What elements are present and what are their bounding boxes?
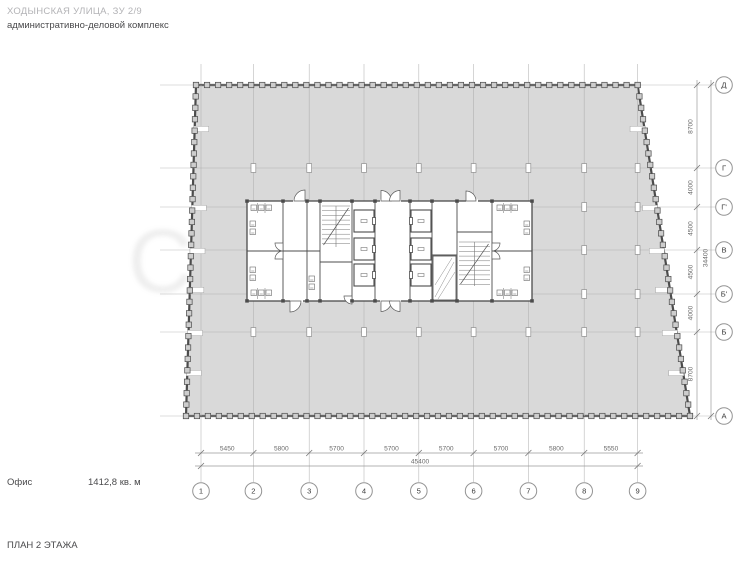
wall-nub bbox=[408, 199, 412, 202]
building-core bbox=[245, 190, 534, 312]
facade-tick bbox=[190, 208, 195, 213]
dimension-label: 5800 bbox=[274, 446, 289, 453]
facade-tick bbox=[458, 82, 463, 87]
wc-fixture bbox=[512, 205, 518, 211]
wc-fixture bbox=[250, 221, 256, 227]
dimension-label: 5700 bbox=[384, 446, 399, 453]
dimension-label: 5800 bbox=[549, 446, 564, 453]
facade-tick bbox=[658, 231, 663, 236]
facade-tick bbox=[651, 185, 656, 190]
elevator-door-mark bbox=[373, 272, 376, 279]
facade-tick bbox=[646, 151, 651, 156]
dimension-label: 4000 bbox=[688, 180, 695, 195]
wall-slot bbox=[190, 248, 205, 253]
wc-fixture bbox=[524, 267, 530, 273]
dimension-label: 4000 bbox=[688, 305, 695, 320]
space-type-label: Офис bbox=[7, 477, 32, 488]
facade-tick bbox=[188, 265, 193, 270]
facade-tick bbox=[194, 413, 199, 418]
column-marker bbox=[635, 246, 640, 255]
facade-tick bbox=[633, 413, 638, 418]
wc-fixture bbox=[505, 290, 511, 296]
elevator-shaft bbox=[411, 264, 431, 286]
wc-fixture bbox=[497, 205, 503, 211]
facade-tick bbox=[523, 413, 528, 418]
wall-nub bbox=[530, 299, 534, 302]
facade-tick bbox=[639, 105, 644, 110]
axis-bubble-label: Г bbox=[722, 164, 726, 173]
plan-title: ПЛАН 2 ЭТАЖА bbox=[7, 540, 78, 551]
wc-fixture bbox=[309, 276, 315, 282]
wc-fixture bbox=[251, 290, 257, 296]
facade-tick bbox=[673, 322, 678, 327]
facade-tick bbox=[613, 82, 618, 87]
facade-tick bbox=[186, 311, 191, 316]
facade-tick bbox=[640, 117, 645, 122]
column-marker bbox=[471, 164, 476, 173]
facade-tick bbox=[501, 413, 506, 418]
facade-tick bbox=[622, 413, 627, 418]
axis-bubble-label: 3 bbox=[307, 487, 311, 496]
facade-tick bbox=[186, 322, 191, 327]
dimension-label: 34400 bbox=[703, 249, 710, 268]
dimension-label: 5450 bbox=[220, 446, 235, 453]
elevator-shaft bbox=[411, 238, 431, 260]
facade-tick bbox=[260, 82, 265, 87]
wall-nub bbox=[455, 199, 459, 202]
facade-tick bbox=[644, 139, 649, 144]
wall-nub bbox=[281, 299, 285, 302]
wc-fixture bbox=[497, 290, 503, 296]
facade-tick bbox=[249, 413, 254, 418]
facade-tick bbox=[578, 413, 583, 418]
facade-tick bbox=[479, 413, 484, 418]
facade-tick bbox=[315, 82, 320, 87]
wc-fixture bbox=[250, 229, 256, 235]
axis-bubble-label: 4 bbox=[362, 487, 366, 496]
facade-tick bbox=[192, 139, 197, 144]
facade-tick bbox=[337, 413, 342, 418]
wc-fixture bbox=[524, 221, 530, 227]
facade-tick bbox=[187, 299, 192, 304]
wall-nub bbox=[350, 199, 354, 202]
facade-tick bbox=[184, 390, 189, 395]
elevator-door-mark bbox=[373, 218, 376, 225]
facade-tick bbox=[491, 82, 496, 87]
facade-tick bbox=[490, 413, 495, 418]
wc-fixture bbox=[524, 229, 530, 235]
column-marker bbox=[251, 164, 256, 173]
facade-tick bbox=[642, 128, 647, 133]
facade-tick bbox=[655, 208, 660, 213]
facade-tick bbox=[337, 82, 342, 87]
axis-bubble-label: Д bbox=[721, 81, 726, 90]
axis-bubble-label: 6 bbox=[471, 487, 475, 496]
column-marker bbox=[582, 290, 587, 299]
column-marker bbox=[635, 328, 640, 337]
wc-fixture bbox=[266, 205, 272, 211]
elevator-door-mark bbox=[410, 246, 413, 253]
facade-tick bbox=[190, 185, 195, 190]
dimension-label: 5700 bbox=[329, 446, 344, 453]
dimension-label: 4500 bbox=[688, 264, 695, 279]
facade-tick bbox=[525, 82, 530, 87]
wc-fixture bbox=[524, 275, 530, 281]
column-marker bbox=[416, 328, 421, 337]
facade-tick bbox=[193, 105, 198, 110]
column-marker bbox=[307, 164, 312, 173]
facade-tick bbox=[189, 219, 194, 224]
facade-tick bbox=[187, 288, 192, 293]
wall-nub bbox=[408, 299, 412, 302]
facade-tick bbox=[304, 413, 309, 418]
wall-nub bbox=[305, 199, 309, 202]
wall-nub bbox=[350, 299, 354, 302]
dimension-label: 5700 bbox=[439, 446, 454, 453]
facade-tick bbox=[185, 345, 190, 350]
facade-tick bbox=[662, 254, 667, 259]
facade-tick bbox=[237, 82, 242, 87]
facade-tick bbox=[687, 413, 692, 418]
column-marker bbox=[635, 290, 640, 299]
facade-tick bbox=[547, 82, 552, 87]
axis-bubble-label: Г' bbox=[721, 203, 727, 212]
axis-bubble-label: 5 bbox=[417, 487, 421, 496]
facade-tick bbox=[370, 413, 375, 418]
facade-tick bbox=[684, 390, 689, 395]
wall-slot bbox=[649, 248, 664, 253]
facade-tick bbox=[657, 219, 662, 224]
facade-tick bbox=[348, 82, 353, 87]
facade-tick bbox=[660, 242, 665, 247]
wc-fixture bbox=[250, 267, 256, 273]
dimension-label: 8700 bbox=[688, 366, 695, 381]
facade-tick bbox=[468, 413, 473, 418]
facade-tick bbox=[204, 82, 209, 87]
facade-tick bbox=[648, 162, 653, 167]
facade-tick bbox=[567, 413, 572, 418]
dimension-label: 45400 bbox=[411, 459, 430, 466]
facade-tick bbox=[293, 82, 298, 87]
facade-tick bbox=[653, 196, 658, 201]
wall-nub bbox=[245, 299, 249, 302]
facade-tick bbox=[435, 413, 440, 418]
facade-tick bbox=[665, 413, 670, 418]
facade-tick bbox=[685, 402, 690, 407]
facade-tick bbox=[282, 82, 287, 87]
facade-tick bbox=[675, 333, 680, 338]
facade-tick bbox=[392, 82, 397, 87]
axis-bubble-label: Б bbox=[722, 328, 727, 337]
elevator-door-mark bbox=[410, 272, 413, 279]
elevator-shaft bbox=[354, 264, 374, 286]
wall-nub bbox=[281, 199, 285, 202]
facade-tick bbox=[192, 128, 197, 133]
facade-tick bbox=[414, 82, 419, 87]
facade-tick bbox=[666, 276, 671, 281]
facade-tick bbox=[676, 413, 681, 418]
facade-tick bbox=[348, 413, 353, 418]
facade-tick bbox=[192, 117, 197, 122]
facade-tick bbox=[480, 82, 485, 87]
space-area-value: 1412,8 кв. м bbox=[88, 477, 141, 488]
column-marker bbox=[582, 164, 587, 173]
elevator-shaft bbox=[354, 238, 374, 260]
facade-tick bbox=[193, 94, 198, 99]
elevator-shaft bbox=[354, 210, 374, 232]
dimension-label: 5700 bbox=[494, 446, 509, 453]
axis-bubble-label: 2 bbox=[251, 487, 255, 496]
column-marker bbox=[471, 328, 476, 337]
facade-tick bbox=[359, 82, 364, 87]
axis-bubble-label: Б' bbox=[721, 290, 728, 299]
facade-tick bbox=[611, 413, 616, 418]
wall-nub bbox=[490, 199, 494, 202]
facade-tick bbox=[189, 231, 194, 236]
axis-bubble-label: 9 bbox=[635, 487, 639, 496]
facade-tick bbox=[680, 368, 685, 373]
facade-tick bbox=[185, 368, 190, 373]
wall-nub bbox=[245, 199, 249, 202]
wall-nub bbox=[430, 299, 434, 302]
dimension-label: 5550 bbox=[604, 446, 619, 453]
facade-tick bbox=[635, 82, 640, 87]
facade-tick bbox=[513, 82, 518, 87]
axis-bubble-label: 8 bbox=[582, 487, 586, 496]
facade-tick bbox=[191, 151, 196, 156]
facade-tick bbox=[271, 413, 276, 418]
facade-tick bbox=[413, 413, 418, 418]
facade-tick bbox=[534, 413, 539, 418]
facade-tick bbox=[190, 196, 195, 201]
facade-tick bbox=[326, 413, 331, 418]
facade-tick bbox=[502, 82, 507, 87]
facade-tick bbox=[637, 94, 642, 99]
wall-nub bbox=[373, 299, 377, 302]
floor-plan-page: ХОДЫНСКАЯ УЛИЦА, ЗУ 2/9 административно-… bbox=[0, 0, 756, 570]
column-marker bbox=[526, 164, 531, 173]
wc-fixture bbox=[259, 290, 265, 296]
facade-tick bbox=[184, 379, 189, 384]
column-marker bbox=[635, 203, 640, 212]
facade-tick bbox=[671, 311, 676, 316]
facade-tick bbox=[589, 413, 594, 418]
facade-tick bbox=[249, 82, 254, 87]
facade-tick bbox=[403, 82, 408, 87]
column-marker bbox=[416, 164, 421, 173]
facade-tick bbox=[436, 82, 441, 87]
facade-tick bbox=[215, 82, 220, 87]
facade-tick bbox=[227, 413, 232, 418]
facade-tick bbox=[556, 413, 561, 418]
facade-tick bbox=[602, 82, 607, 87]
facade-tick bbox=[624, 82, 629, 87]
facade-tick bbox=[424, 413, 429, 418]
facade-tick bbox=[664, 265, 669, 270]
facade-tick bbox=[271, 82, 276, 87]
column-marker bbox=[307, 328, 312, 337]
facade-tick bbox=[425, 82, 430, 87]
dimension-label: 4500 bbox=[688, 221, 695, 236]
facade-tick bbox=[188, 254, 193, 259]
column-marker bbox=[362, 164, 367, 173]
facade-tick bbox=[238, 413, 243, 418]
facade-tick bbox=[205, 413, 210, 418]
facade-tick bbox=[643, 413, 648, 418]
facade-tick bbox=[216, 413, 221, 418]
facade-tick bbox=[447, 82, 452, 87]
facade-tick bbox=[600, 413, 605, 418]
facade-tick bbox=[370, 82, 375, 87]
facade-tick bbox=[678, 356, 683, 361]
facade-tick bbox=[591, 82, 596, 87]
wall-nub bbox=[318, 299, 322, 302]
wall-nub bbox=[318, 199, 322, 202]
facade-tick bbox=[391, 413, 396, 418]
facade-tick bbox=[667, 288, 672, 293]
facade-tick bbox=[569, 82, 574, 87]
wc-fixture bbox=[309, 284, 315, 290]
elevator-door-mark bbox=[410, 218, 413, 225]
facade-tick bbox=[183, 413, 188, 418]
axis-bubble-label: В bbox=[721, 246, 726, 255]
facade-tick bbox=[580, 82, 585, 87]
facade-tick bbox=[304, 82, 309, 87]
facade-tick bbox=[191, 162, 196, 167]
facade-tick bbox=[188, 242, 193, 247]
facade-tick bbox=[187, 276, 192, 281]
facade-tick bbox=[184, 402, 189, 407]
facade-tick bbox=[381, 82, 386, 87]
wall-nub bbox=[530, 199, 534, 202]
facade-tick bbox=[457, 413, 462, 418]
wc-fixture bbox=[250, 275, 256, 281]
facade-tick bbox=[293, 413, 298, 418]
dimension-label: 8700 bbox=[688, 119, 695, 134]
facade-tick bbox=[191, 174, 196, 179]
column-marker bbox=[251, 328, 256, 337]
column-marker bbox=[635, 164, 640, 173]
facade-tick bbox=[226, 82, 231, 87]
facade-tick bbox=[446, 413, 451, 418]
facade-tick bbox=[676, 345, 681, 350]
facade-tick bbox=[558, 82, 563, 87]
wc-fixture bbox=[505, 205, 511, 211]
column-marker bbox=[582, 246, 587, 255]
facade-tick bbox=[186, 333, 191, 338]
column-marker bbox=[526, 328, 531, 337]
wc-fixture bbox=[259, 205, 265, 211]
wall-nub bbox=[430, 199, 434, 202]
wall-nub bbox=[455, 299, 459, 302]
elevator-door-mark bbox=[373, 246, 376, 253]
wc-fixture bbox=[512, 290, 518, 296]
facade-tick bbox=[536, 82, 541, 87]
column-marker bbox=[362, 328, 367, 337]
axis-bubble-label: 1 bbox=[199, 487, 203, 496]
facade-tick bbox=[185, 356, 190, 361]
facade-tick bbox=[402, 413, 407, 418]
elevator-shaft bbox=[411, 210, 431, 232]
facade-tick bbox=[654, 413, 659, 418]
facade-tick bbox=[381, 413, 386, 418]
column-marker bbox=[582, 328, 587, 337]
wall-nub bbox=[490, 299, 494, 302]
facade-tick bbox=[315, 413, 320, 418]
wall-nub bbox=[373, 199, 377, 202]
wc-fixture bbox=[266, 290, 272, 296]
facade-tick bbox=[512, 413, 517, 418]
facade-tick bbox=[649, 174, 654, 179]
facade-tick bbox=[282, 413, 287, 418]
column-marker bbox=[582, 203, 587, 212]
service-room bbox=[433, 256, 456, 300]
wall-nub bbox=[305, 299, 309, 302]
facade-tick bbox=[682, 379, 687, 384]
facade-tick bbox=[359, 413, 364, 418]
facade-tick bbox=[545, 413, 550, 418]
facade-tick bbox=[469, 82, 474, 87]
facade-tick bbox=[326, 82, 331, 87]
facade-tick bbox=[260, 413, 265, 418]
wc-fixture bbox=[251, 205, 257, 211]
facade-tick bbox=[193, 82, 198, 87]
axis-bubble-label: 7 bbox=[526, 487, 530, 496]
facade-tick bbox=[669, 299, 674, 304]
